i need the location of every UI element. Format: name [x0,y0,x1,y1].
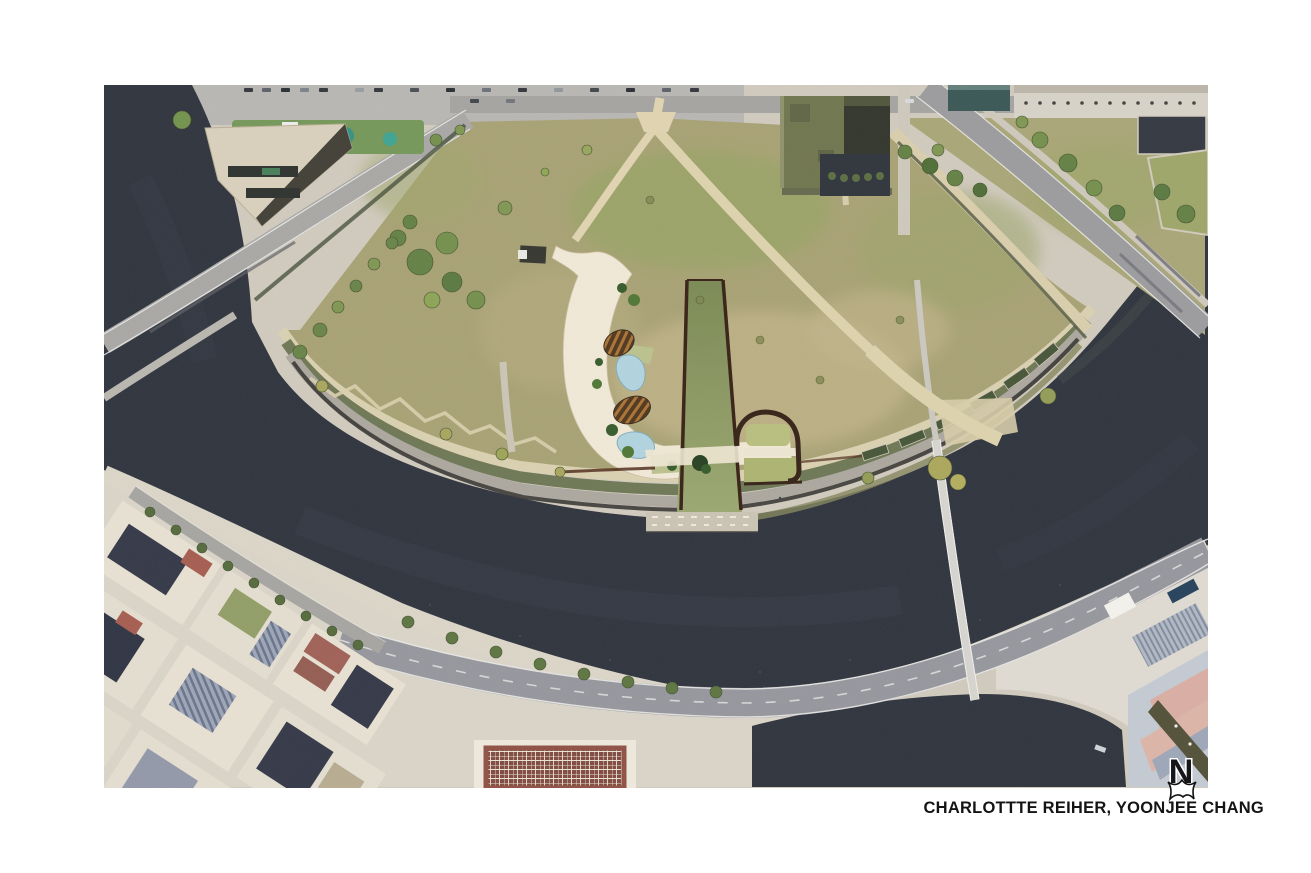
presentation-page: N CHARLOTTTE REIHER, YOONJEE CHANG [0,0,1311,873]
north-arrow: N [1168,753,1196,799]
caption: CHARLOTTTE REIHER, YOONJEE CHANG [924,799,1264,818]
aerial-photo: N [0,0,1311,873]
photo-grain [104,85,1208,788]
